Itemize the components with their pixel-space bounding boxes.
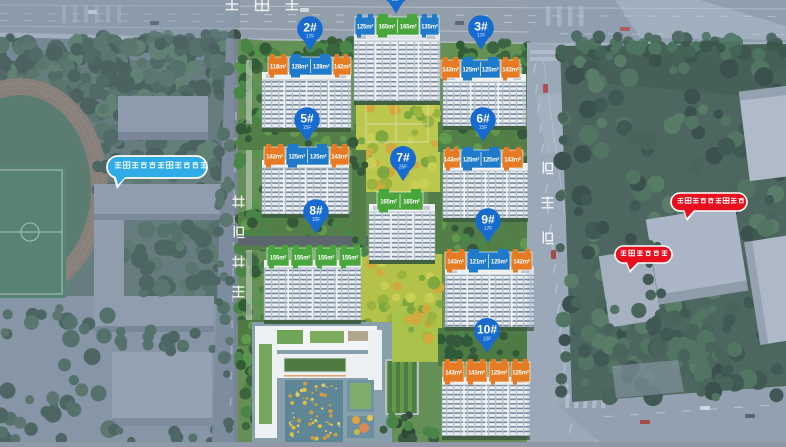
svg-text:125m²: 125m² — [491, 370, 508, 377]
svg-text:142m²: 142m² — [513, 259, 530, 266]
svg-text:33F: 33F — [392, 0, 401, 3]
svg-text:155m²: 155m² — [342, 255, 359, 262]
svg-text:121m²: 121m² — [469, 259, 486, 266]
svg-text:125m²: 125m² — [288, 154, 305, 161]
svg-text:15F: 15F — [303, 125, 312, 131]
svg-text:155m²: 155m² — [270, 255, 287, 262]
svg-text:10#: 10# — [477, 323, 497, 337]
svg-text:143m²: 143m² — [468, 370, 485, 377]
svg-text:125m²: 125m² — [310, 154, 327, 161]
svg-text:143m²: 143m² — [445, 370, 462, 377]
svg-text:125m²: 125m² — [483, 157, 500, 164]
svg-text:143m²: 143m² — [447, 259, 464, 266]
svg-text:9#: 9# — [481, 213, 495, 227]
svg-text:118m²: 118m² — [270, 64, 286, 71]
svg-text:7#: 7# — [396, 151, 410, 165]
svg-text:125m²: 125m² — [482, 67, 499, 74]
svg-text:143m²: 143m² — [331, 154, 348, 161]
svg-text:10F: 10F — [312, 217, 321, 223]
svg-text:142m²: 142m² — [334, 64, 351, 71]
svg-text:135m²: 135m² — [421, 24, 438, 31]
svg-text:10F: 10F — [483, 336, 492, 342]
svg-text:17F: 17F — [477, 33, 486, 39]
svg-text:17F: 17F — [484, 226, 493, 232]
svg-text:143m²: 143m² — [266, 154, 283, 161]
svg-text:155m²: 155m² — [318, 255, 335, 262]
svg-text:125m²: 125m² — [463, 157, 480, 164]
svg-text:165m²: 165m² — [403, 199, 420, 206]
svg-text:155m²: 155m² — [294, 255, 311, 262]
svg-text:6#: 6# — [476, 112, 490, 126]
svg-text:3#: 3# — [474, 20, 488, 34]
svg-text:17F: 17F — [306, 34, 315, 40]
svg-text:125m²: 125m² — [491, 259, 508, 266]
svg-text:8#: 8# — [309, 204, 323, 218]
svg-text:125m²: 125m² — [512, 370, 529, 377]
svg-text:15F: 15F — [479, 125, 488, 131]
svg-text:143m²: 143m² — [502, 67, 519, 74]
svg-text:125m²: 125m² — [462, 67, 479, 74]
svg-text:125m²: 125m² — [357, 24, 374, 31]
svg-text:143m²: 143m² — [442, 67, 459, 74]
svg-text:165m²: 165m² — [378, 24, 395, 31]
svg-text:143m²: 143m² — [444, 157, 461, 164]
svg-text:165m²: 165m² — [400, 24, 417, 31]
svg-text:128m²: 128m² — [291, 64, 308, 71]
svg-text:128m²: 128m² — [313, 64, 330, 71]
svg-text:165m²: 165m² — [380, 199, 397, 206]
svg-text:5#: 5# — [300, 112, 314, 126]
svg-text:143m²: 143m² — [504, 157, 521, 164]
svg-text:26F: 26F — [399, 164, 408, 170]
svg-text:2#: 2# — [303, 21, 317, 35]
